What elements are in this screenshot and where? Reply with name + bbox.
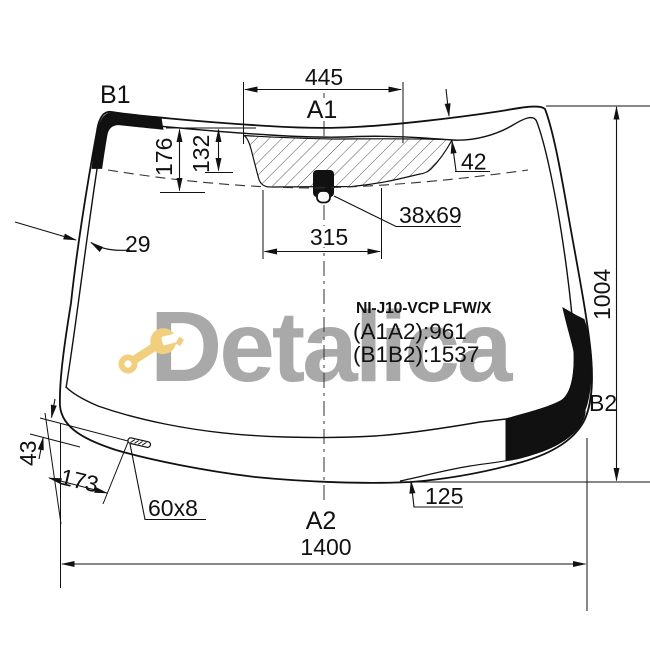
svg-text:1400: 1400	[300, 534, 351, 560]
svg-text:38x69: 38x69	[399, 202, 462, 228]
svg-text:43: 43	[15, 440, 41, 466]
svg-text:B1: B1	[100, 81, 131, 109]
svg-text:42: 42	[461, 149, 487, 175]
svg-text:60x8: 60x8	[148, 495, 198, 521]
svg-text:176: 176	[151, 138, 177, 176]
svg-text:315: 315	[310, 224, 348, 250]
svg-text:445: 445	[305, 64, 343, 90]
svg-text:173: 173	[58, 464, 101, 498]
svg-text:29: 29	[125, 231, 151, 257]
svg-text:132: 132	[188, 135, 214, 173]
svg-text:(B1B2):1537: (B1B2):1537	[353, 342, 479, 367]
svg-text:1004: 1004	[589, 269, 615, 320]
svg-text:A2: A2	[306, 507, 337, 535]
svg-text:A1: A1	[307, 96, 338, 124]
svg-text:B2: B2	[589, 390, 617, 416]
svg-text:NI-J10-VCP LFW/X: NI-J10-VCP LFW/X	[356, 300, 492, 317]
svg-text:125: 125	[425, 483, 463, 509]
svg-text:(A1A2):961: (A1A2):961	[353, 319, 467, 344]
